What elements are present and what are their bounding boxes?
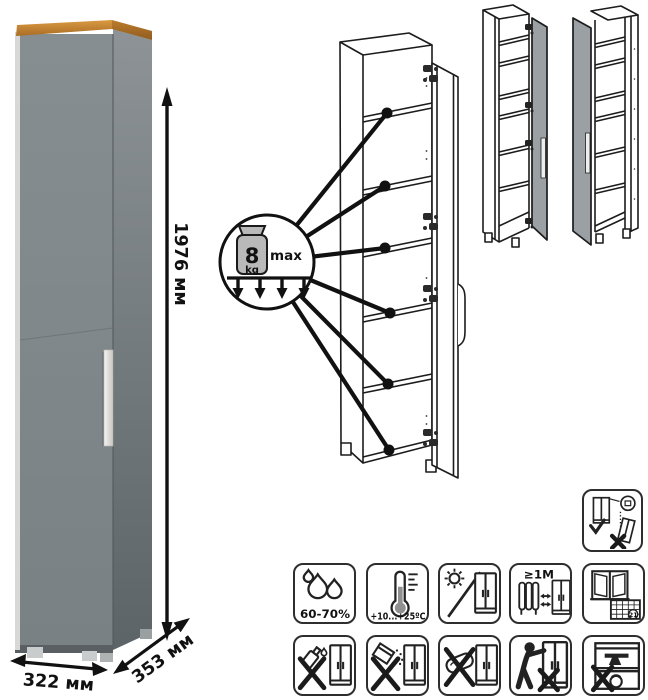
variant-door-right: [483, 5, 547, 247]
max-load-unit: kg: [245, 265, 259, 276]
no-direct-sun-icon: [438, 563, 501, 624]
drop-icon: [321, 648, 326, 655]
no-wet-sponge-icon: [438, 635, 501, 696]
anchor-check-icon: [582, 489, 643, 552]
max-load-callout: 8 kg max: [220, 215, 314, 309]
humidity-value: 60-70%: [299, 607, 349, 621]
calendar-icon: 21: [610, 600, 639, 619]
variant-door-handle: [586, 133, 591, 173]
wardrobe-glyph: [330, 645, 351, 684]
dimension-annotations: 1976 мм 322 мм 353 мм: [0, 0, 210, 700]
ventilation-calendar-icon: 21: [582, 563, 645, 624]
thermometer-icon: +10...+25ºC: [366, 563, 429, 624]
open-door: [432, 63, 465, 478]
anchor-check-glyph: [586, 493, 640, 549]
door-variants: [472, 4, 646, 252]
min-distance-value: ≥1М: [523, 567, 553, 581]
x-mark: [300, 659, 324, 688]
temperature-range: +10...+25ºC: [370, 611, 425, 621]
radiator-icon: [519, 583, 538, 615]
wardrobe-glyph: [404, 645, 425, 684]
humidity-drops-icon: 60-70%: [293, 563, 356, 624]
wardrobe-glyph: [475, 573, 496, 612]
wardrobe-glyph: [552, 581, 570, 614]
calendar-day: 21: [628, 611, 637, 619]
spacing-arrows: [540, 594, 551, 607]
wardrobe-glyph: [476, 645, 497, 684]
product-sheet: 1976 мм 322 мм 353 мм: [0, 0, 648, 700]
anvil-icon: [604, 654, 628, 665]
width-arrow: [22, 662, 96, 669]
kettlebell-icon: [610, 676, 621, 688]
door-handle: [458, 284, 465, 346]
height-dimension-label: 1976 мм: [170, 222, 190, 305]
max-load-label: max: [270, 248, 302, 264]
no-overload-icon: [582, 635, 645, 696]
cabinet-line-drawing: 8 kg max: [208, 16, 476, 500]
shelf-pin-holes: [426, 77, 428, 425]
variant-door-left: [573, 6, 638, 245]
callout-dots: [380, 108, 396, 456]
distance-from-heat-icon: ≥1М: [509, 563, 572, 624]
open-window-icon: [590, 571, 629, 599]
no-dragging-icon: [509, 635, 572, 696]
sun-icon: [444, 569, 464, 589]
no-solvent-icon: [293, 635, 356, 696]
no-abrasive-icon: [366, 635, 429, 696]
person-icon: [518, 642, 544, 687]
width-dimension-label: 322 мм: [22, 670, 95, 696]
variant-door-handle: [541, 138, 546, 178]
